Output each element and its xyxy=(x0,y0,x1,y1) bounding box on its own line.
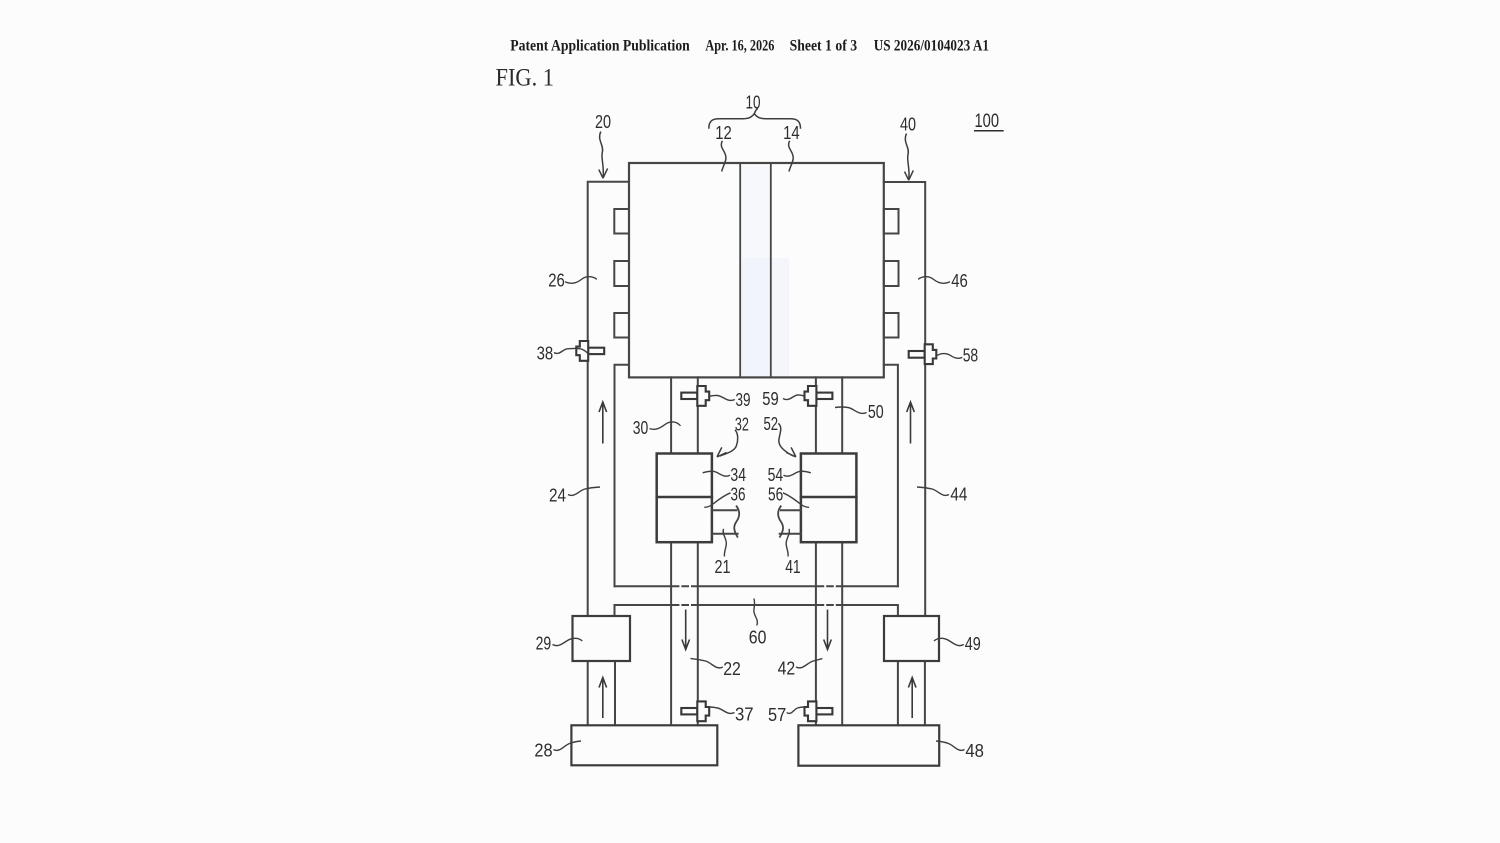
svg-text:41: 41 xyxy=(785,557,801,577)
svg-text:44: 44 xyxy=(950,485,967,505)
svg-text:52: 52 xyxy=(764,414,779,434)
svg-text:22: 22 xyxy=(723,659,741,679)
svg-text:36: 36 xyxy=(731,485,746,505)
svg-text:49: 49 xyxy=(965,634,981,654)
svg-text:24: 24 xyxy=(549,486,566,506)
svg-text:12: 12 xyxy=(715,123,732,143)
svg-text:46: 46 xyxy=(951,271,968,291)
svg-text:59: 59 xyxy=(762,389,778,409)
svg-text:38: 38 xyxy=(537,343,554,363)
svg-text:48: 48 xyxy=(965,741,984,761)
svg-text:32: 32 xyxy=(735,415,749,435)
svg-text:40: 40 xyxy=(900,115,916,135)
svg-text:Sheet 1 of 3: Sheet 1 of 3 xyxy=(790,38,858,55)
svg-text:57: 57 xyxy=(768,705,786,725)
svg-text:37: 37 xyxy=(735,704,754,724)
svg-text:42: 42 xyxy=(778,659,796,679)
svg-text:Patent Application Publication: Patent Application Publication xyxy=(510,38,690,55)
svg-text:20: 20 xyxy=(595,112,611,132)
svg-text:10: 10 xyxy=(746,93,761,113)
svg-text:14: 14 xyxy=(783,123,800,143)
svg-text:21: 21 xyxy=(715,557,731,577)
svg-text:26: 26 xyxy=(548,270,565,290)
svg-text:Apr. 16, 2026: Apr. 16, 2026 xyxy=(705,38,774,55)
svg-text:34: 34 xyxy=(730,465,746,485)
svg-text:28: 28 xyxy=(534,741,552,761)
svg-text:100: 100 xyxy=(975,111,1000,132)
svg-text:FIG. 1: FIG. 1 xyxy=(496,65,555,92)
svg-text:US 2026/0104023 A1: US 2026/0104023 A1 xyxy=(874,38,989,55)
svg-text:30: 30 xyxy=(633,418,649,438)
svg-text:60: 60 xyxy=(749,628,767,648)
svg-text:58: 58 xyxy=(963,346,979,366)
svg-text:54: 54 xyxy=(768,465,784,485)
svg-text:56: 56 xyxy=(768,485,783,505)
svg-text:39: 39 xyxy=(736,390,751,410)
svg-text:29: 29 xyxy=(536,634,552,654)
svg-text:50: 50 xyxy=(868,402,884,422)
